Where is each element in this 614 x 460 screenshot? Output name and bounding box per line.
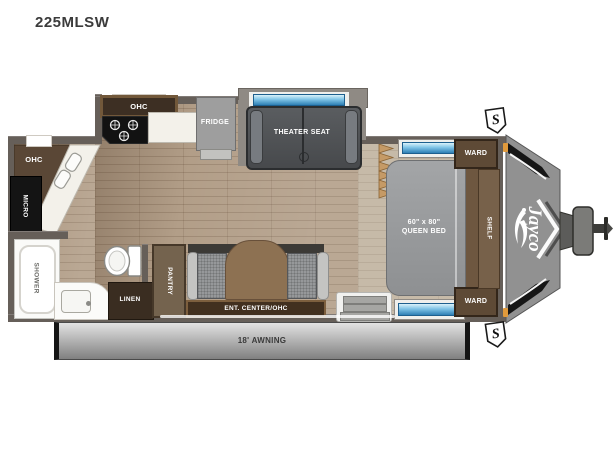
floorplan-canvas: 225MLSW OHC THEATER SEAT OHC [0,0,614,460]
step-1 [343,296,387,304]
theater-seat-label-wrap: THEATER SEAT [258,126,346,140]
shower-label-wrap: SHOWER [14,239,58,317]
bed-type-label: QUEEN BED [402,228,446,237]
hitch [560,207,613,255]
clearance-light-bottom [503,308,508,317]
stove-cooktop [102,116,148,144]
ent-center-label: ENT. CENTER/OHC [224,305,287,313]
micro-label-wrap: MICRO [10,176,40,236]
page-title: 225MLSW [35,14,109,31]
theater-seat-label: THEATER SEAT [274,129,330,138]
bed-label-wrap: 60" x 80" QUEEN BED [388,214,460,242]
shower-label: SHOWER [32,262,40,293]
theater-window [253,94,345,106]
hitch-coupler [573,207,593,255]
theater-cup-holder [299,152,309,162]
pantry-label: PANTRY [165,267,173,295]
bed-size-label: 60" x 80" [408,219,441,228]
wardrobe-bottom-label-wrap: WARD [454,287,498,317]
micro-label: MICRO [21,194,29,217]
step-2 [343,304,387,312]
front-cap: Jayco [502,110,614,352]
awning-label: 18' AWNING [238,336,287,346]
shelf-label: SHELF [484,217,492,240]
window-rear-top [26,135,52,147]
awning-label-wrap: 18' AWNING [54,322,470,360]
brand-logo-text: Jayco [524,205,545,251]
wall-bath-partition [8,231,68,239]
fridge-label-wrap: FRIDGE [196,97,234,149]
theater-armrest-right [345,110,358,164]
clearance-light-top [503,143,508,152]
awning-rail [160,315,395,318]
wardrobe-bottom-label: WARD [465,298,488,307]
rear-ohc-cabinet: OHC [16,152,52,168]
speaker-badge-top: S [483,106,509,137]
linen-label: LINEN [120,296,141,304]
wardrobe-top-label-wrap: WARD [454,139,498,169]
hitch-tip [607,222,613,235]
fridge-step [200,149,232,160]
linen-label-wrap: LINEN [108,282,152,318]
rear-ohc-label: OHC [25,155,43,164]
dinette-table [225,240,289,300]
wall-top-rear [8,136,97,144]
wardrobe-top-label: WARD [465,150,488,159]
booth-bench-right [287,253,317,299]
fridge-label: FRIDGE [201,119,229,128]
speaker-badge-bottom: S [483,320,509,351]
booth-armrest-right [317,252,329,300]
pantry-label-wrap: PANTRY [152,244,186,318]
bedroom-window-top [402,142,458,154]
shelf-label-wrap: SHELF [478,169,498,287]
kitchen-counter [148,112,198,143]
bedroom-window-bottom [398,303,461,316]
kitchen-ohc-label: OHC [130,102,148,111]
bath-faucet [86,301,91,306]
bath-vanity [54,282,112,320]
wall-toilet-side [142,244,148,284]
toilet [102,242,146,280]
booth-bench-left [197,253,227,299]
